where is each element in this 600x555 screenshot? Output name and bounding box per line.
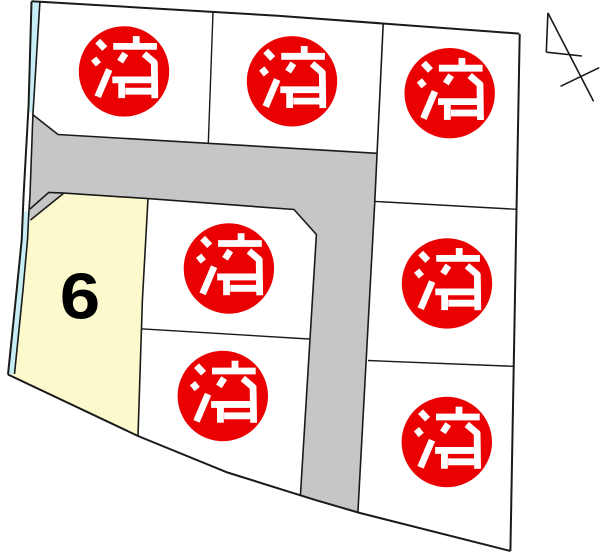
svg-text:6: 6 [60, 260, 100, 333]
